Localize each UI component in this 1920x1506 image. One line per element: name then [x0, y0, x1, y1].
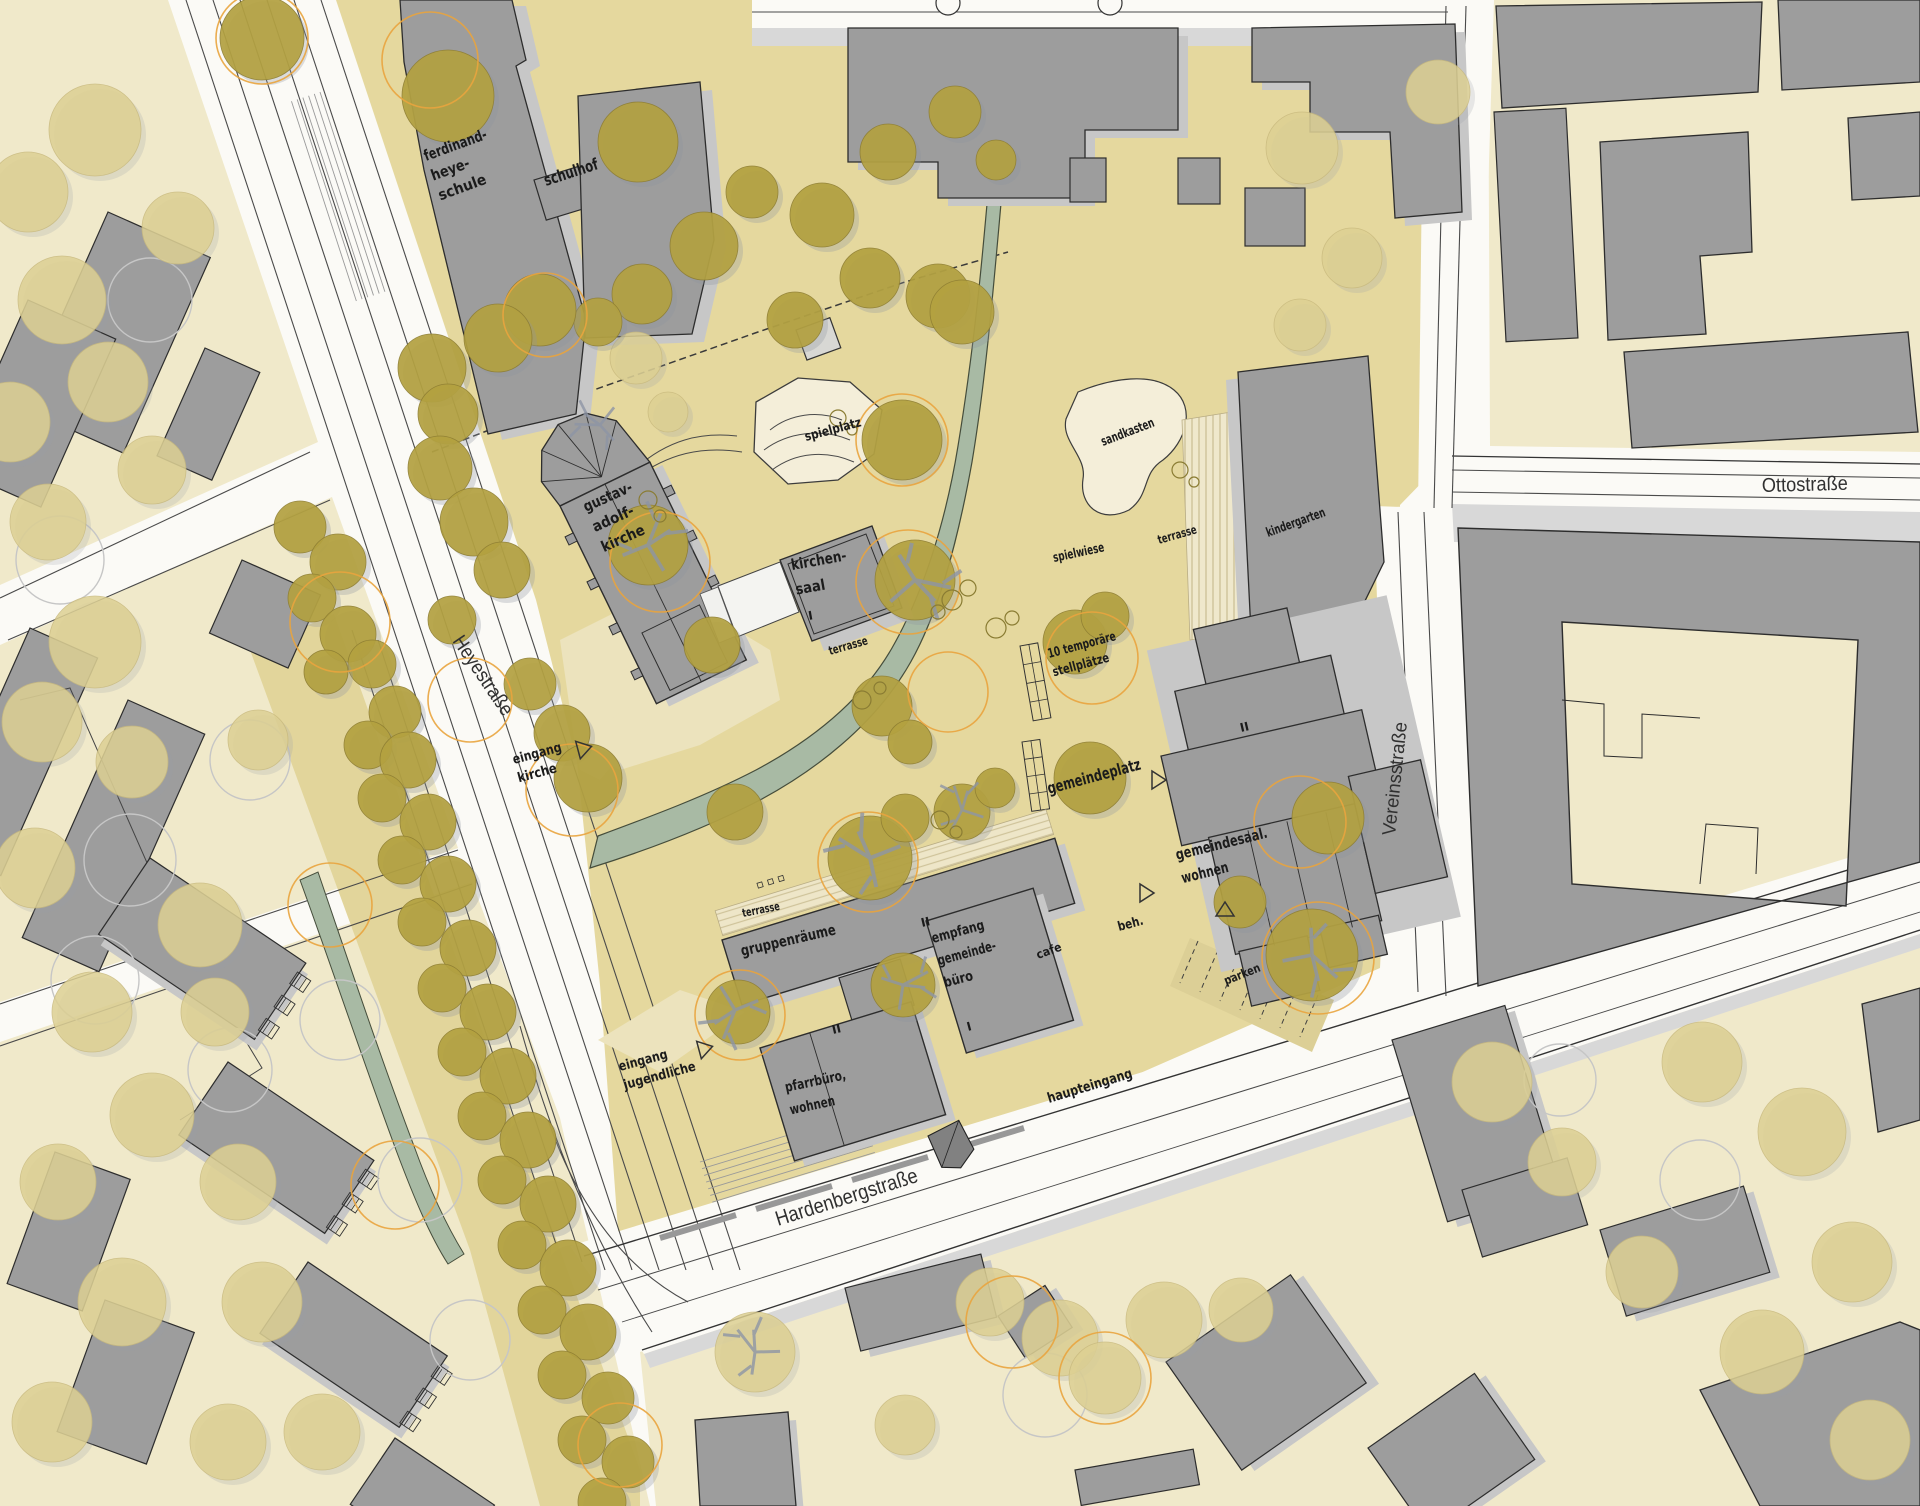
tree-olive — [862, 400, 942, 480]
tree-olive — [464, 304, 532, 372]
building — [695, 1412, 796, 1506]
tree-olive — [474, 542, 530, 598]
tree-olive — [598, 102, 678, 182]
tree-pale — [68, 342, 148, 422]
tree-olive — [1292, 782, 1364, 854]
tree-pale — [78, 1258, 166, 1346]
tree-pale — [1830, 1400, 1910, 1480]
tree-olive — [220, 0, 304, 80]
tree-pale — [1069, 1342, 1141, 1414]
tree-olive — [976, 140, 1016, 180]
tree-pale — [18, 256, 106, 344]
tree-olive — [554, 744, 622, 812]
tree-pale — [181, 978, 249, 1046]
tree-pale — [142, 192, 214, 264]
tree-pale — [96, 726, 168, 798]
tree-olive — [478, 1156, 526, 1204]
tree-olive — [348, 640, 396, 688]
site-plan-map: ferdinand-heye-schuleschulhofspielplatzg… — [0, 0, 1920, 1506]
tree-pale — [20, 1144, 96, 1220]
tree-pale — [49, 84, 141, 176]
building — [1496, 2, 1762, 108]
tree-pale — [1452, 1042, 1532, 1122]
tree-pale — [1266, 112, 1338, 184]
tree-pale — [158, 883, 242, 967]
tree-olive — [398, 898, 446, 946]
tree-pale — [1606, 1236, 1678, 1308]
tree-pale — [1812, 1222, 1892, 1302]
tree-olive — [558, 1416, 606, 1464]
tree-pale — [200, 1144, 276, 1220]
label-ottostrasse: Ottostraße — [1762, 473, 1849, 497]
building — [1848, 112, 1920, 200]
tree-pale — [1662, 1022, 1742, 1102]
tree-pale — [49, 596, 141, 688]
tree-olive — [726, 166, 778, 218]
tree-pale — [1209, 1278, 1273, 1342]
tree-olive — [707, 784, 763, 840]
tree-olive — [767, 292, 823, 348]
tree-pale — [648, 392, 688, 432]
site-plan-page: ferdinand-heye-schuleschulhofspielplatzg… — [0, 0, 1920, 1506]
building — [1070, 158, 1106, 202]
tree-pale — [284, 1394, 360, 1470]
tree-olive — [975, 768, 1015, 808]
tree-olive — [458, 1092, 506, 1140]
tree-pale — [190, 1404, 266, 1480]
tree-olive — [518, 1286, 566, 1334]
tree-pale — [52, 972, 132, 1052]
tree-olive — [840, 248, 900, 308]
building — [1494, 108, 1578, 341]
tree-pale — [1528, 1128, 1596, 1196]
building — [1778, 0, 1920, 90]
tree-pale — [12, 1382, 92, 1462]
tree-olive — [378, 836, 426, 884]
tree-pale — [228, 710, 288, 770]
tree-pale — [110, 1073, 194, 1157]
tree-olive — [418, 964, 466, 1012]
tree-olive — [574, 298, 622, 346]
street-ottostrasse — [1452, 452, 1920, 512]
tree-olive — [888, 720, 932, 764]
tree-pale — [2, 682, 82, 762]
tree-olive — [790, 183, 854, 247]
tree-pale — [1406, 60, 1470, 124]
tree-olive — [538, 1351, 586, 1399]
tree-pale — [10, 484, 86, 560]
tree-pale — [0, 828, 75, 908]
building — [1178, 158, 1220, 204]
tree-pale — [1758, 1088, 1846, 1176]
tree-olive — [358, 774, 406, 822]
tree-pale — [118, 436, 186, 504]
tree-olive — [418, 384, 478, 444]
tree-olive — [684, 617, 740, 673]
building — [1624, 332, 1918, 448]
tree-olive — [860, 124, 916, 180]
tree-olive — [438, 1028, 486, 1076]
tree-olive — [498, 1221, 546, 1269]
tree-pale — [1274, 299, 1326, 351]
tree-olive — [930, 280, 994, 344]
tree-pale — [1720, 1310, 1804, 1394]
tree-olive — [670, 212, 738, 280]
tree-pale — [222, 1262, 302, 1342]
tree-pale — [1322, 228, 1382, 288]
tree-olive — [929, 86, 981, 138]
tree-pale — [1126, 1282, 1202, 1358]
tree-pale — [875, 1395, 935, 1455]
tree-olive — [881, 794, 929, 842]
building — [1245, 188, 1305, 246]
tree-olive — [1214, 876, 1266, 928]
